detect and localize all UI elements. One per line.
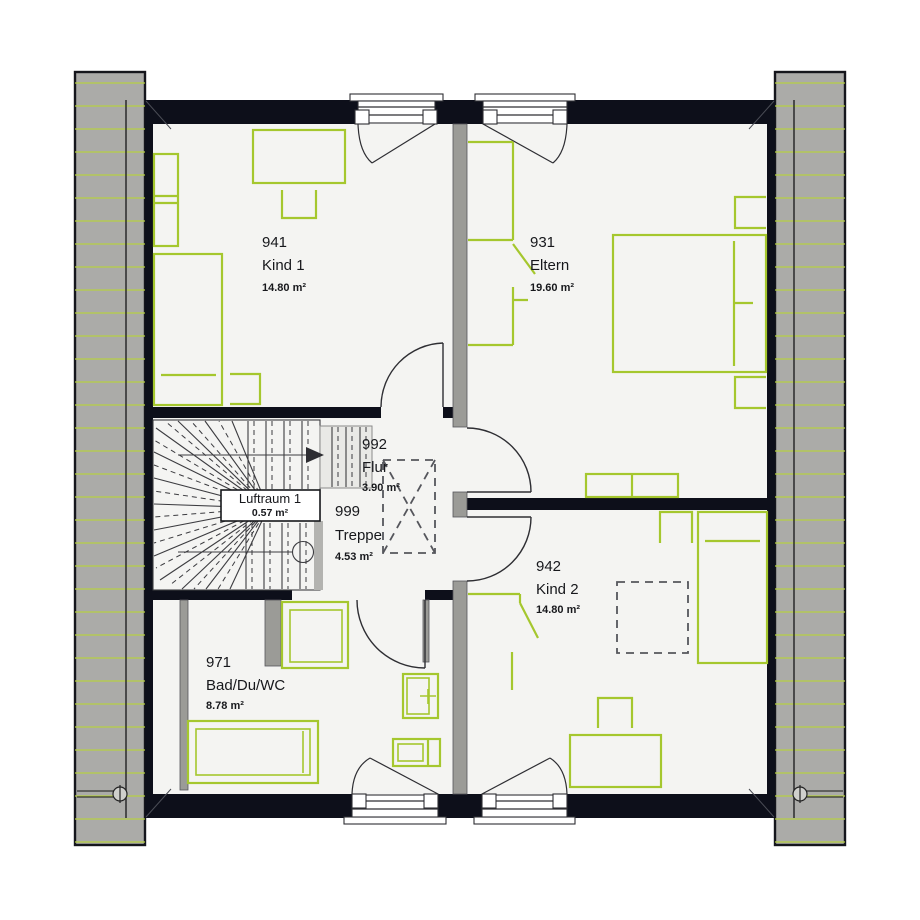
roof-strip-right <box>775 72 845 845</box>
luftraum-area: 0.57 m² <box>252 507 289 519</box>
luftraum-box: Luftraum 1 0.57 m² <box>221 490 320 521</box>
room-number: 971 <box>206 654 231 671</box>
room-number: 942 <box>536 558 561 575</box>
room-area: 19.60 m² <box>530 282 574 294</box>
floor-plan-drawing: Luftraum 1 0.57 m² <box>0 0 920 920</box>
room-name: Flur <box>362 459 388 476</box>
room-area: 14.80 m² <box>262 282 306 294</box>
room-number: 941 <box>262 234 287 251</box>
room-area: 8.78 m² <box>206 700 244 712</box>
roof-strip-left <box>75 72 145 845</box>
floor-plan-page: Luftraum 1 0.57 m² <box>0 0 920 920</box>
room-name: Treppe <box>335 527 382 544</box>
room-number: 999 <box>335 503 360 520</box>
room-number: 992 <box>362 436 387 453</box>
room-area: 14.80 m² <box>536 604 580 616</box>
room-name: Bad/Du/WC <box>206 677 285 694</box>
room-name: Eltern <box>530 257 569 274</box>
room-area: 3.90 m² <box>362 482 400 494</box>
room-area: 4.53 m² <box>335 551 373 563</box>
luftraum-name: Luftraum 1 <box>239 491 301 506</box>
room-number: 931 <box>530 234 555 251</box>
room-name: Kind 1 <box>262 257 305 274</box>
room-name: Kind 2 <box>536 581 579 598</box>
